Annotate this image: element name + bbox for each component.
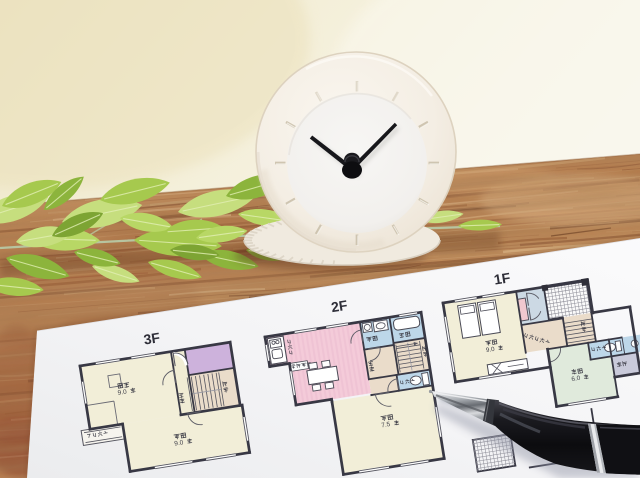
svg-text:9.0: 9.0 [117, 389, 127, 397]
svg-text:1F: 1F [493, 269, 512, 287]
svg-text:6.0: 6.0 [571, 375, 581, 383]
svg-text:9.0: 9.0 [174, 439, 184, 447]
svg-text:3F: 3F [142, 329, 161, 347]
svg-text:7.5: 7.5 [381, 421, 391, 429]
svg-text:9.0: 9.0 [485, 346, 495, 354]
svg-text:2F: 2F [330, 297, 349, 315]
